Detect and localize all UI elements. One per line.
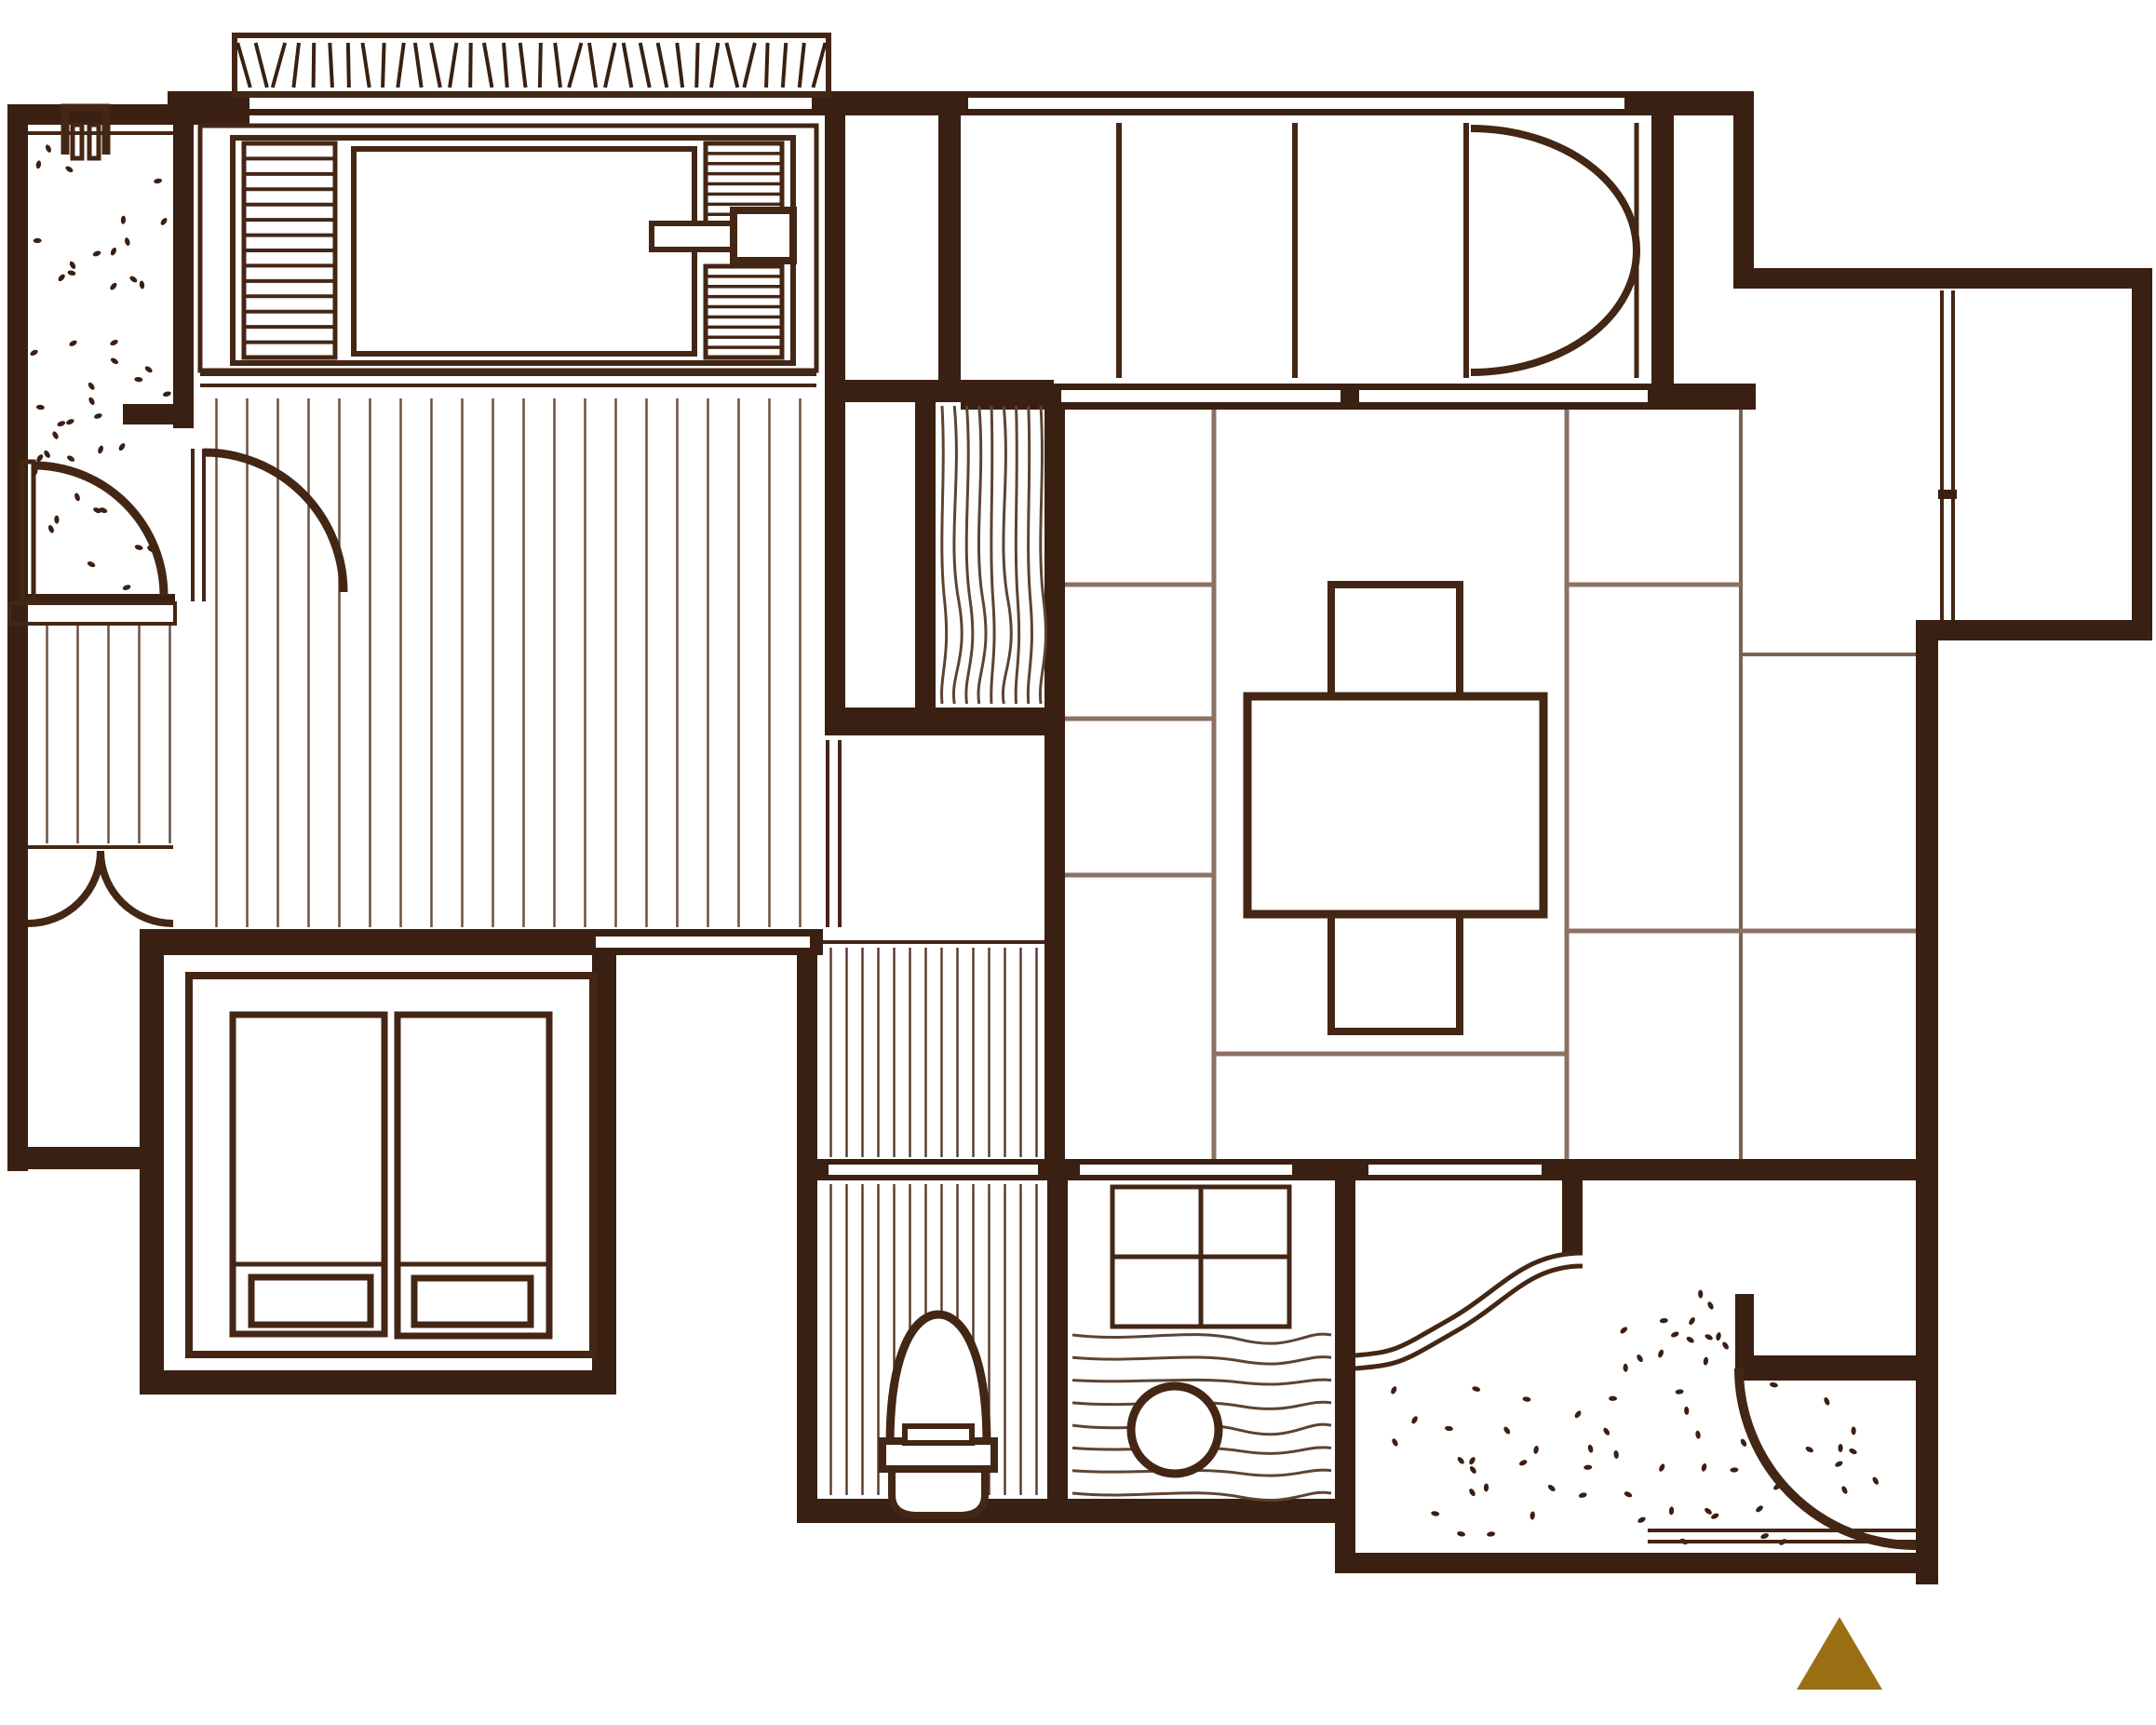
pillow-right	[414, 1278, 531, 1325]
low-table-set	[1247, 585, 1543, 1031]
closet-double-door	[1471, 128, 1637, 372]
bedroom-doors	[28, 449, 1044, 942]
closet-top	[1119, 123, 1637, 378]
walls	[7, 91, 2152, 1584]
toilet-icon	[883, 1314, 994, 1516]
pillow-left	[251, 1277, 371, 1325]
step-edge-curve	[1355, 1253, 1583, 1355]
washer-pan-grid	[1112, 1187, 1289, 1327]
genkan-entrance	[1355, 1253, 1916, 1545]
mattress-left	[233, 1015, 384, 1334]
balcony-railing	[235, 35, 829, 95]
mattress-right	[398, 1015, 549, 1336]
floor-cushion-bottom	[1331, 914, 1460, 1031]
wash-basin-icon	[1131, 1386, 1219, 1474]
mattress-top	[354, 149, 694, 354]
wood-grain-floors	[942, 406, 1331, 1501]
porch-room	[9, 108, 175, 624]
low-table	[1247, 696, 1543, 914]
double-bed-top	[200, 126, 816, 385]
washroom	[1112, 1187, 1289, 1474]
floor-cushion-top	[1331, 585, 1460, 696]
entrance-door	[1648, 1368, 1916, 1545]
railing-slats	[237, 43, 825, 88]
porch-door	[22, 462, 164, 600]
bed-side-table	[734, 210, 793, 261]
window-latch-tick	[1938, 490, 1957, 499]
entrance-marker	[1797, 1617, 1882, 1690]
floor-plan-canvas	[0, 0, 2156, 1725]
tatami-room	[1065, 410, 1916, 1159]
floor-plan-drawing	[0, 0, 2156, 1725]
twin-beds	[189, 976, 593, 1354]
toilet-room	[883, 1314, 994, 1516]
left-closet-double-door	[28, 847, 173, 923]
threshold-step	[9, 603, 175, 624]
bed-side-shelf	[652, 223, 734, 249]
